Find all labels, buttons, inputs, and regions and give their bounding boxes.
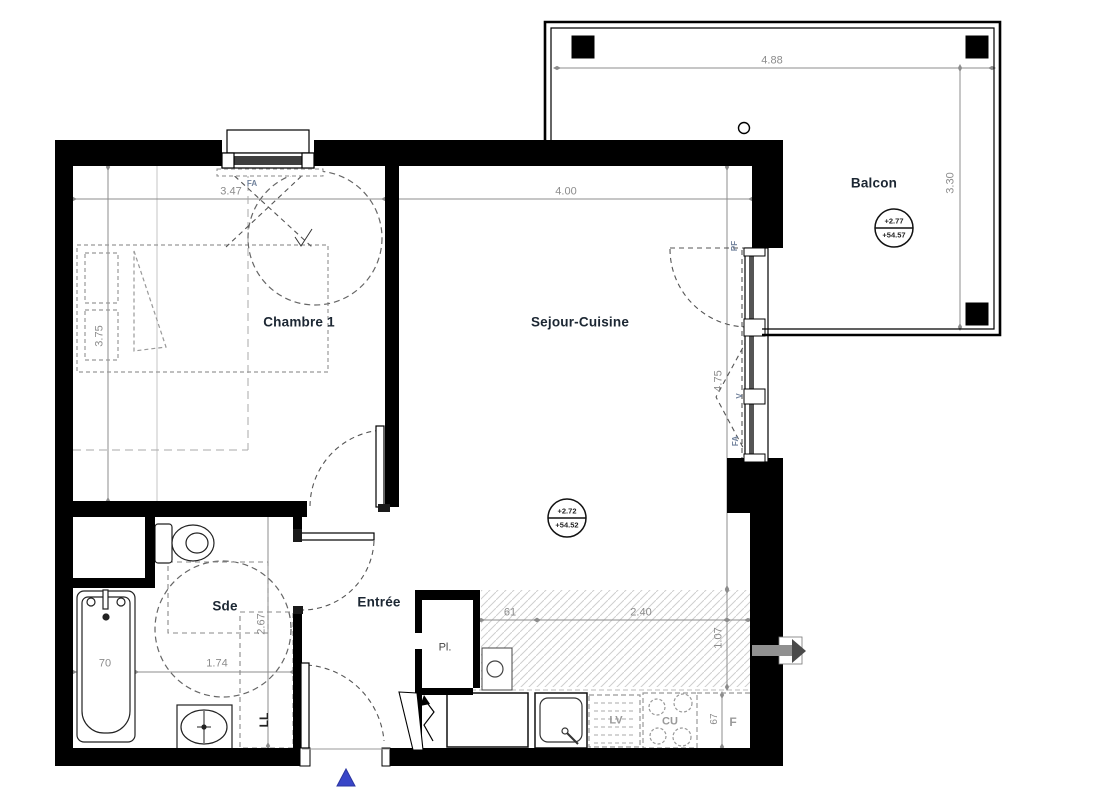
window-label-fa-right: FA: [732, 436, 740, 446]
room-label-entree: Entrée: [357, 595, 400, 609]
fridge-label: F: [729, 716, 736, 728]
dim-sde-width: 1.74: [206, 659, 227, 670]
dim-kitchen-depth: 1.07: [714, 627, 725, 648]
level-sejour-value: +2.72: [558, 507, 577, 515]
level-sejour-altitude: +54.52: [555, 521, 578, 529]
dim-sejour-width: 4.00: [555, 187, 576, 198]
wall-bottom-right: [390, 748, 783, 766]
wall-shaft-right: [145, 517, 155, 588]
wall-closet-bottom: [415, 688, 473, 695]
dim-balcon-width: 4.88: [761, 56, 782, 67]
wall-right-lower: [750, 458, 783, 766]
dim-chambre-depth: 3.75: [95, 325, 106, 346]
wall-marker-circle: [739, 123, 750, 134]
balcony-post: [966, 36, 988, 58]
dim-bathtub: 70: [99, 659, 111, 670]
bedroom-window: [217, 130, 323, 176]
bedroom-door-leaf: [376, 426, 384, 507]
wall-closet-right: [473, 600, 480, 688]
door-jamb: [382, 748, 390, 766]
dishwasher-label: LV: [609, 716, 622, 727]
wall-right-upper: [752, 140, 783, 248]
washer-label: LL: [258, 713, 270, 728]
room-label-balcon: Balcon: [851, 176, 897, 190]
cooktop-label: CU: [662, 717, 678, 728]
window-label-pf: PF: [731, 241, 739, 251]
room-label-sejour: Sejour-Cuisine: [531, 315, 629, 329]
door-jamb: [300, 748, 310, 766]
balcony-door-window: [744, 248, 768, 462]
dim-fridge: 67: [710, 713, 720, 724]
sde-door-leaf: [301, 533, 374, 540]
wall-partition-bedroom: [385, 166, 399, 507]
dim-chambre-width: 3.47: [220, 187, 241, 198]
bedroom-window-swing: [226, 170, 312, 247]
floor-plan-drawing: [0, 0, 1113, 800]
wall-top: [55, 140, 783, 166]
toilet-tank: [155, 524, 172, 563]
shutter-box: [227, 130, 309, 153]
wall-sde-top: [55, 501, 307, 517]
window-label-v: V: [736, 393, 744, 398]
balcony-post: [966, 303, 988, 325]
wall-closet-left-a: [415, 600, 422, 633]
bed-furniture: [77, 245, 328, 372]
wall-shaft-bottom: [73, 578, 155, 588]
kitchen-hatch-zone: [415, 590, 750, 690]
dim-kitchen-run: 2.40: [630, 608, 651, 619]
dim-kitchen-offset: 61: [504, 608, 516, 619]
closet-label: Pl.: [439, 643, 452, 654]
floor-plan: Chambre 1 Sejour-Cuisine Balcon Sde Entr…: [0, 0, 1113, 800]
entrance-arrow-zigzag: [424, 700, 434, 741]
dim-sejour-depth: 4.75: [714, 370, 725, 391]
north-arrow: [337, 769, 355, 786]
wall-bottom-left: [55, 748, 302, 766]
room-label-chambre: Chambre 1: [263, 315, 335, 329]
level-balcon-altitude: +54.57: [882, 231, 905, 239]
dim-sde-depth: 2.67: [257, 613, 268, 634]
balcony-post: [572, 36, 594, 58]
dim-balcon-depth: 3.30: [946, 172, 957, 193]
wall-left: [55, 166, 73, 766]
wall-closet-top: [415, 590, 480, 600]
entrance-door-leaf: [301, 663, 309, 748]
kitchen-cabinet: [447, 693, 528, 747]
window-label-fa-top: FA: [247, 180, 257, 188]
room-label-sde: Sde: [212, 599, 237, 613]
level-balcon-value: +2.77: [885, 217, 904, 225]
